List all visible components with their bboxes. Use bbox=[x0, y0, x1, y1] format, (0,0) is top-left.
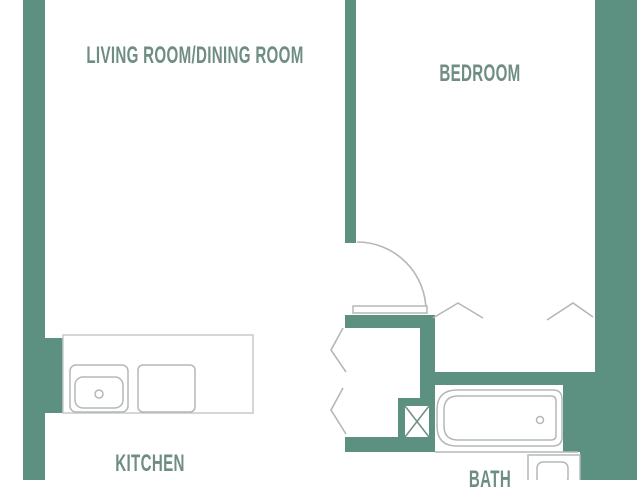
bathtub-drain-icon bbox=[537, 417, 544, 424]
bedroom-label: BEDROOM bbox=[439, 62, 520, 86]
right-wall bbox=[595, 0, 637, 375]
hall-closet-chevron-top-icon bbox=[331, 328, 346, 372]
bath-right-wall-lower bbox=[580, 450, 637, 480]
bath-right-wall bbox=[563, 385, 637, 452]
floor-plan: { "palette": { "bg": "#ffffff", "wall": … bbox=[0, 0, 640, 480]
bedroom-door-swing-arc bbox=[357, 242, 426, 311]
left-wall bbox=[23, 0, 45, 480]
kitchen-label: KITCHEN bbox=[115, 452, 184, 476]
kitchen-range bbox=[138, 365, 195, 412]
floor-plan-drawing bbox=[0, 0, 640, 480]
bedroom-door-leaf bbox=[353, 306, 427, 313]
hall-closet-chevron-bottom-icon bbox=[331, 388, 346, 434]
kitchen-sink-drain-icon bbox=[95, 390, 103, 398]
bedroom-closet-chevron-right-icon bbox=[547, 303, 593, 320]
vanity-sink-basin bbox=[537, 462, 568, 480]
living-dining-label: LIVING ROOM/DINING ROOM bbox=[86, 44, 303, 68]
left-wall-thick-section bbox=[45, 338, 63, 413]
bedroom-left-wall bbox=[345, 0, 356, 243]
bath-label: BATH bbox=[469, 468, 511, 492]
bedroom-closet-chevron-left-icon bbox=[433, 303, 483, 318]
